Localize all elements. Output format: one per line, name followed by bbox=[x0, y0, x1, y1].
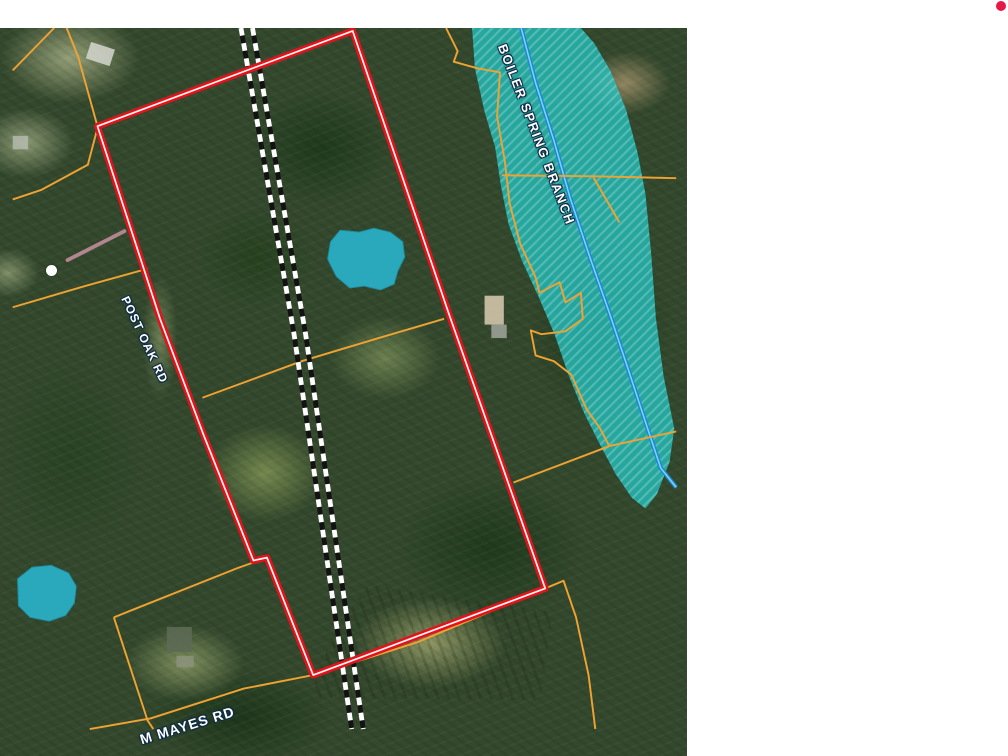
gis-parcel-map-page: BOILER SPRING BRANCH POST OAK RD M MAYES… bbox=[0, 0, 1008, 756]
measure-line bbox=[68, 231, 125, 260]
map-canvas[interactable]: BOILER SPRING BRANCH POST OAK RD M MAYES… bbox=[0, 28, 687, 756]
railroad-track bbox=[241, 28, 363, 729]
selected-property-boundary[interactable] bbox=[97, 31, 545, 675]
map-feature-layer bbox=[0, 28, 687, 756]
measure-point-marker[interactable] bbox=[46, 265, 57, 276]
flood-zone-polygon bbox=[472, 28, 674, 509]
notification-dot bbox=[996, 1, 1006, 11]
pond-polygons bbox=[18, 228, 405, 621]
